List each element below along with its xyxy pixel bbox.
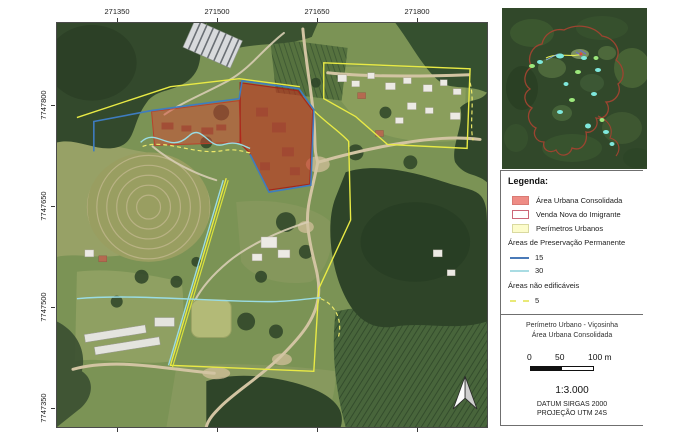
- scale-label-50: 50: [555, 352, 564, 362]
- panel-divider: [500, 170, 643, 171]
- fill-swatch: [512, 224, 529, 233]
- datum-text: DATUM SIRGAS 2000: [500, 400, 644, 409]
- legend-item-label: Área Urbana Consolidada: [536, 196, 622, 205]
- map-layout-page: 271350 271500 271650 271800 7747800 7747…: [0, 0, 700, 439]
- y-tick: [51, 105, 55, 106]
- x-tick: [217, 428, 218, 432]
- y-axis-label: 7747650: [39, 186, 49, 226]
- y-axis-label: 7747350: [39, 388, 49, 428]
- satellite-map-art: [57, 23, 487, 427]
- legend-group-heading-non-buildable: Áreas não edificáveis: [508, 281, 579, 290]
- legend-item-label: Venda Nova do Imigrante: [536, 210, 621, 219]
- legend-item-app-15: 15: [510, 252, 543, 263]
- datum-projection-block: DATUM SIRGAS 2000 PROJEÇÃO UTM 24S: [500, 400, 644, 418]
- map-title-line1: Perímetro Urbano - Viçosinha: [500, 321, 644, 331]
- x-tick: [317, 18, 318, 22]
- scale-label-0: 0: [527, 352, 532, 362]
- x-axis-label: 271800: [395, 7, 439, 16]
- y-axis-label: 7747800: [39, 85, 49, 125]
- x-tick: [417, 18, 418, 22]
- inset-map-art: [502, 8, 647, 169]
- panel-divider: [500, 314, 643, 315]
- x-axis-label: 271350: [95, 7, 139, 16]
- scale-label-100: 100 m: [588, 352, 612, 362]
- scale-bar: 0 50 100 m: [500, 352, 644, 371]
- y-tick: [51, 206, 55, 207]
- y-tick: [51, 408, 55, 409]
- line-swatch: [510, 257, 529, 259]
- fill-swatch: [512, 196, 529, 205]
- map-title-line2: Área Urbana Consolidada: [500, 331, 644, 341]
- inset-overview-map: [502, 8, 647, 169]
- legend-item-label: 15: [535, 253, 543, 262]
- projection-text: PROJEÇÃO UTM 24S: [500, 409, 644, 418]
- scale-bar-filled-segment: [531, 367, 562, 370]
- dashed-line-swatch: [510, 300, 529, 302]
- x-tick: [117, 428, 118, 432]
- legend-item-non-buildable-5: 5: [510, 295, 539, 306]
- legend-item-urban-area: Área Urbana Consolidada: [512, 195, 622, 206]
- line-swatch: [510, 270, 529, 272]
- legend-item-municipality: Venda Nova do Imigrante: [512, 209, 621, 220]
- scale-ratio: 1:3.000: [500, 385, 644, 396]
- main-map-canvas: [56, 22, 488, 428]
- x-axis-label: 271650: [295, 7, 339, 16]
- legend-item-label: Perímetros Urbanos: [536, 224, 603, 233]
- y-tick: [51, 307, 55, 308]
- scale-bar-graphic: [530, 366, 594, 371]
- x-tick: [417, 428, 418, 432]
- legend-title: Legenda:: [508, 176, 548, 186]
- x-axis-label: 271500: [195, 7, 239, 16]
- y-axis-label: 7747500: [39, 287, 49, 327]
- panel-divider: [500, 425, 643, 426]
- legend-item-app-30: 30: [510, 265, 543, 276]
- map-title-block: Perímetro Urbano - Viçosinha Área Urbana…: [500, 321, 644, 341]
- legend-item-label: 30: [535, 266, 543, 275]
- legend-group-heading-app: Áreas de Preservação Permanente: [508, 238, 625, 247]
- x-tick: [217, 18, 218, 22]
- legend-item-label: 5: [535, 296, 539, 305]
- outline-swatch: [512, 210, 529, 219]
- x-tick: [317, 428, 318, 432]
- legend-item-perimeters: Perímetros Urbanos: [512, 223, 603, 234]
- x-tick: [117, 18, 118, 22]
